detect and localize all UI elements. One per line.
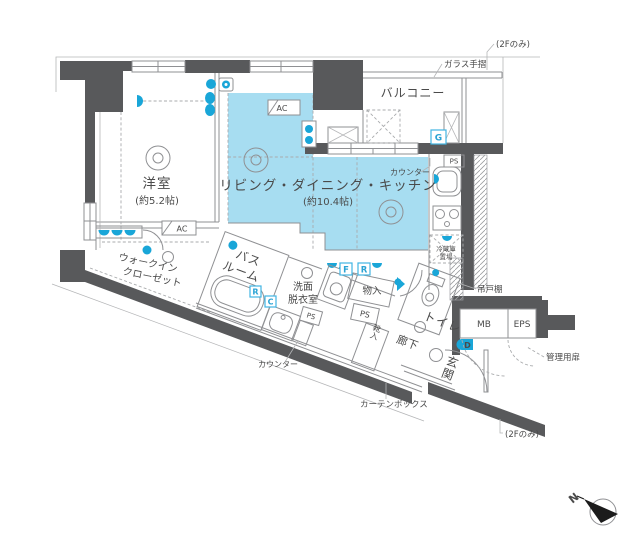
kitchen: PS 冷蔵庫 置場 (430, 155, 464, 263)
wall-top-left-step (60, 61, 135, 203)
annotation-glass-rail: ガラス手摺 (434, 59, 486, 77)
kitchen-stove (433, 206, 461, 230)
light-western (146, 146, 170, 170)
hallway-label: 廊下 (395, 332, 421, 353)
washroom-label-1: 洗面 (293, 281, 313, 293)
ps-bath: PS (299, 307, 322, 326)
curtain-box-label: カーテンボックス (360, 400, 428, 410)
annotation-service-door: 管理用扉 (527, 347, 580, 363)
light-hall (415, 322, 426, 333)
wall-mb-top (452, 296, 542, 309)
vent-hall-r (372, 263, 382, 268)
western-room-label: 洋室 (143, 175, 172, 192)
ac-western-label: AC (177, 225, 188, 234)
fridge-label-2: 置場 (440, 252, 454, 261)
vent-western-left (137, 95, 143, 107)
north-label: N (566, 490, 581, 506)
storage-label: 物入 (362, 285, 382, 297)
kitchen-sink (433, 167, 461, 196)
north-compass: N (566, 490, 618, 525)
eps-label: EPS (514, 320, 531, 330)
ps-hall-box: PS (351, 303, 380, 324)
counter-kitchen-label: カウンター (390, 168, 430, 177)
bath-r-label: R (252, 288, 258, 297)
hall-label-g: 廊下 (395, 332, 421, 353)
window-balcony-sliding (328, 143, 418, 154)
window-western-top (132, 61, 185, 72)
north-arrow (584, 499, 618, 523)
evacuation-hatch (367, 110, 400, 143)
ldk-size: (約10.4帖) (303, 195, 353, 208)
toilet-bowl (419, 282, 442, 308)
hanging-shelf-hatch (450, 258, 463, 300)
counter-wash-label: カウンター (258, 360, 298, 369)
floorplan-drawing: G PS 冷蔵庫 置場 (0, 0, 640, 556)
fan-r-label: R (361, 266, 368, 276)
bath-room (197, 232, 289, 331)
wall-top-middle (185, 60, 250, 73)
wall-diag-start (60, 250, 85, 282)
floorplan-page: G PS 冷蔵庫 置場 (0, 0, 640, 556)
service-door-label: 管理用扉 (546, 352, 580, 363)
wash-counter (293, 320, 314, 346)
switch-panel-ldk (302, 121, 316, 147)
only2f-bottom-label: (2Fのみ) (505, 430, 539, 440)
structural-walls (60, 60, 575, 437)
ps-kitchen-label: PS (450, 158, 459, 166)
ac-box-western: AC (162, 221, 196, 235)
ps-bath-label: PS (306, 311, 317, 321)
wall-mb-right (536, 300, 548, 338)
balcony-label: バルコニー (381, 86, 446, 100)
ldk-label: リビング・ダイニング・キッチン (219, 178, 437, 194)
ac-box-ldk: AC (268, 100, 300, 115)
vent-hall-light (395, 279, 402, 286)
window-western-left (84, 203, 96, 240)
annotation-2f-top: (2Fのみ) (487, 40, 530, 70)
only2f-top-label: (2Fのみ) (496, 40, 530, 50)
washroom-label-2: 脱衣室 (288, 293, 318, 306)
eps-door-arc (508, 340, 535, 366)
ac-outdoor-unit (328, 127, 358, 143)
light-entrance (430, 349, 443, 362)
wic-label: ウォークイン クローゼット (115, 251, 186, 289)
hanging-shelf-label: 吊戸棚 (477, 284, 503, 295)
bath-c-label: C (268, 298, 274, 307)
door-d-label: D (464, 341, 471, 350)
washing-machine (317, 260, 359, 309)
mb-label: MB (477, 320, 491, 330)
party-wall-hatch (474, 155, 487, 288)
light-washroom (302, 268, 313, 279)
window-ldk-top (250, 61, 313, 72)
fan-f-label: F (343, 266, 349, 276)
western-room-size: (約5.2帖) (135, 194, 179, 207)
wall-balcony-block (313, 60, 363, 110)
fridge-space: 冷蔵庫 置場 (430, 235, 463, 263)
bath-label: バス ルーム (221, 244, 267, 285)
gas-marker: G (435, 134, 442, 144)
ac-ldk-label: AC (277, 104, 288, 113)
vent-wic (143, 246, 152, 255)
wall-mb-step (548, 315, 575, 330)
glass-rail-label: ガラス手摺 (444, 59, 486, 70)
fridge-label-1: 冷蔵庫 (436, 244, 456, 253)
ps-hall-label: PS (359, 309, 371, 320)
